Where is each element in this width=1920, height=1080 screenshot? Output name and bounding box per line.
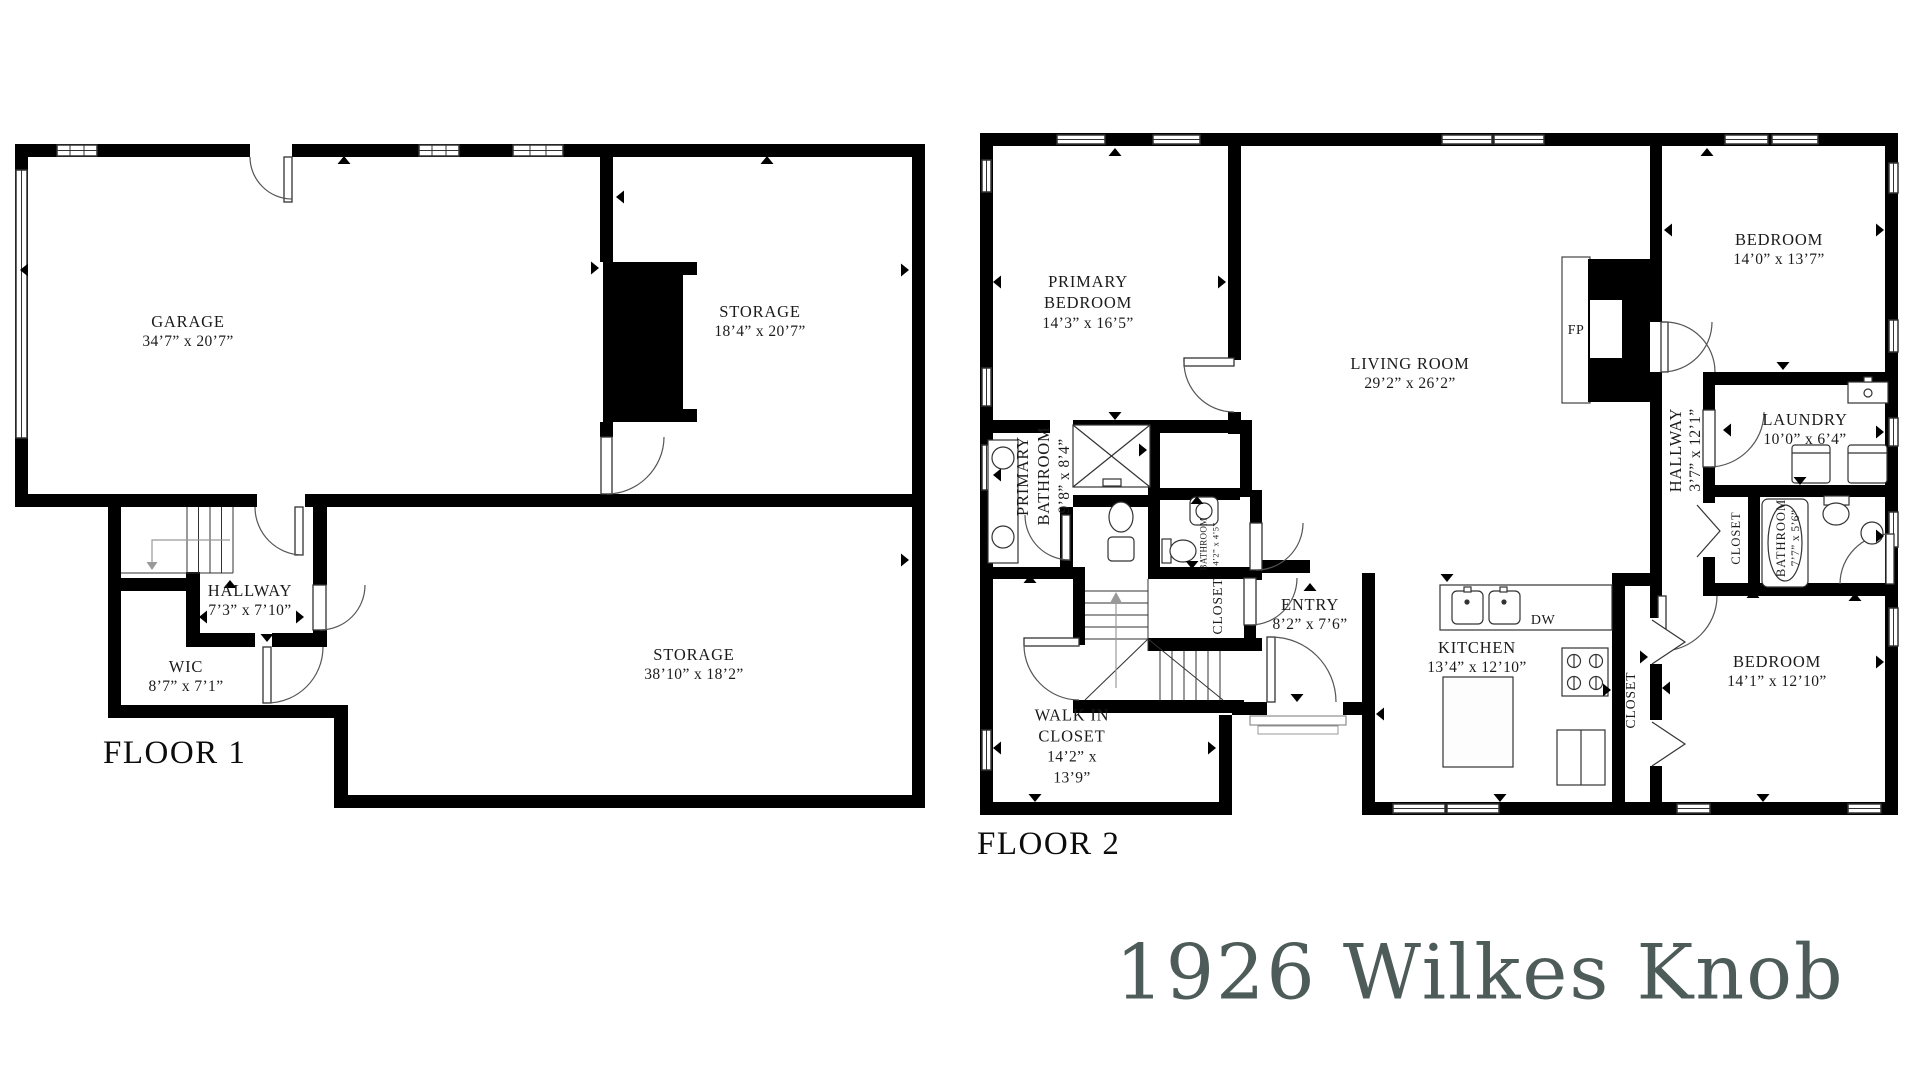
bedroom-top-door-arc — [1665, 322, 1715, 372]
toilet-tank — [1108, 537, 1134, 561]
small-bathroom-door-leaf — [1250, 523, 1262, 570]
room-label-hallway-f1: HALLWAY 7’3” x 7’10” — [208, 580, 292, 622]
dryer-icon — [1848, 445, 1887, 483]
sink-basin-icon — [1452, 591, 1483, 624]
storage-door-leaf — [601, 437, 612, 494]
wic-door-arc — [267, 647, 323, 703]
walkin-closet-door-leaf — [1024, 638, 1079, 646]
room-label-closet-stairs: CLOSET — [1209, 577, 1227, 634]
floor1-plan — [15, 144, 925, 808]
living-hall-door-arc — [1662, 322, 1712, 372]
walkin-closet-opening — [1073, 645, 1085, 700]
room-label-wic: WIC 8’7” x 7’1” — [149, 656, 224, 698]
garage-entry-opening — [250, 144, 292, 157]
garage-entry-door-leaf — [284, 157, 292, 202]
drain-icon — [1864, 389, 1872, 397]
floor1-stairs — [121, 507, 233, 573]
sink-icon — [992, 526, 1014, 548]
front-door-leaf — [1267, 637, 1275, 702]
room-label-garage: GARAGE 34’7” x 20’7” — [142, 311, 233, 353]
primary-bedroom-door-arc — [1184, 362, 1234, 412]
front-door-opening — [1267, 702, 1343, 715]
room-label-entry: ENTRY 8’2” x 7’6” — [1273, 594, 1348, 636]
room-label-closet-hall: CLOSET — [1728, 511, 1744, 564]
room-label-walkin-closet: WALK IN CLOSET 14’2” x 13’9” — [1028, 705, 1116, 790]
room-label-closet-bedroom: CLOSET — [1622, 671, 1640, 728]
floor2-tag: FLOOR 2 — [977, 826, 1120, 863]
floorplan-graphics — [0, 0, 1920, 1080]
kitchen-fixtures — [1440, 585, 1612, 785]
dishwasher-label: DW — [1531, 612, 1555, 630]
storage-door-arc — [607, 437, 664, 494]
faucet-icon — [1464, 587, 1471, 592]
bedroom-closet-bifold — [1652, 722, 1685, 766]
floor1-tag: FLOOR 1 — [103, 735, 246, 772]
walkin-closet-door-arc — [1024, 645, 1079, 700]
stove — [1562, 648, 1608, 696]
faucet-icon — [1500, 587, 1507, 592]
sink-basin-icon — [1489, 591, 1520, 624]
room-label-hallway-f2: HALLWAY 3’7” x 12’1” — [1665, 408, 1707, 492]
room-label-kitchen: KITCHEN 13’4” x 12’10” — [1427, 637, 1526, 679]
room-label-bedroom-bottom: BEDROOM 14’1” x 12’10” — [1727, 651, 1826, 693]
room-label-bathroom-small: BATHROOM 4’2” x 4’5” — [1198, 518, 1221, 571]
room-label-primary-bathroom: PRIMARY BATHROOM 9’8” x 8’4” — [1012, 417, 1076, 535]
hall-bathroom-door-leaf — [1886, 534, 1894, 584]
room-label-storage-top: STORAGE 18’4” x 20’7” — [714, 301, 805, 343]
faucet-icon — [1864, 377, 1872, 382]
wic-door-leaf — [263, 647, 271, 703]
bedroom-closet-bifold — [1652, 620, 1685, 664]
toilet-icon — [1170, 540, 1196, 562]
room-label-bedroom-top: BEDROOM 14’0” x 13’7” — [1733, 229, 1824, 271]
room-label-primary-bedroom: PRIMARY BEDROOM 14’3” x 16’5” — [1026, 271, 1150, 335]
porch-step — [1258, 726, 1338, 734]
porch-step — [1250, 716, 1346, 725]
toilet-icon — [1823, 503, 1849, 525]
shower-drain-icon — [1103, 479, 1121, 486]
property-title: 1926 Wilkes Knob — [1115, 928, 1844, 1017]
room-label-living-room: LIVING ROOM 29’2” x 26’2” — [1350, 353, 1469, 395]
kitchen-island — [1443, 677, 1513, 767]
hallway-right-door-arc — [320, 585, 365, 630]
toilet-icon — [1109, 502, 1133, 532]
stair-closet-door-leaf — [1244, 578, 1256, 625]
floorplan-page: GARAGE 34’7” x 20’7” STORAGE 18’4” x 20’… — [0, 0, 1920, 1080]
living-hall-door-leaf — [1661, 322, 1668, 372]
primary-bedroom-door-leaf — [1184, 358, 1234, 366]
room-label-bathroom-hall: BATHROOM 7’7” x 5’6” — [1773, 499, 1805, 577]
sink-icon — [992, 447, 1014, 469]
room-label-storage-bottom: STORAGE 38’10” x 18’2” — [644, 644, 743, 686]
hallway-right-door-leaf — [313, 585, 326, 630]
front-door-arc — [1271, 637, 1336, 702]
garage-hall-door-leaf — [295, 507, 303, 555]
room-label-laundry: LAUNDRY 10’0” x 6’4” — [1762, 409, 1847, 451]
laundry-door-arc — [1709, 412, 1764, 467]
floor1-walls — [15, 144, 925, 808]
fireplace-label: FP — [1568, 322, 1585, 340]
